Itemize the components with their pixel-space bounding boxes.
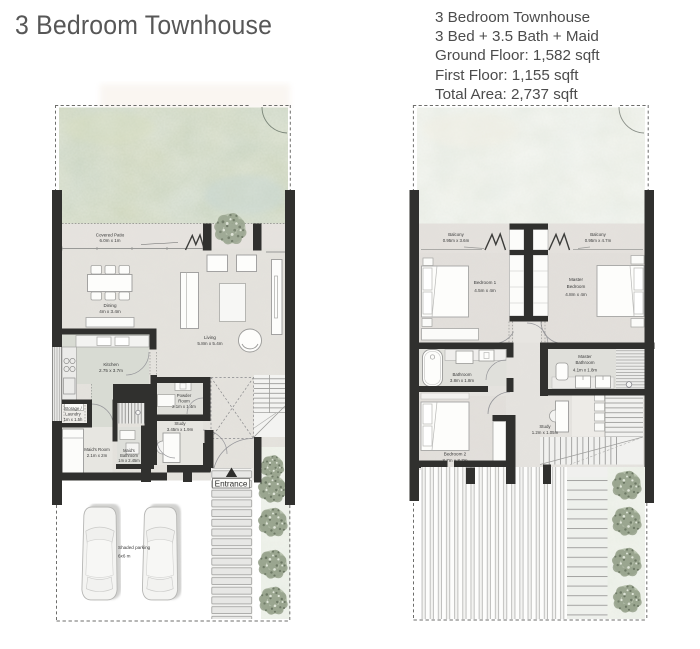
svg-text:0.95m x 4.7m: 0.95m x 4.7m [585, 238, 612, 243]
svg-text:Bathroom: Bathroom [575, 360, 594, 365]
svg-text:4.8m x 4m: 4.8m x 4m [565, 292, 587, 297]
svg-text:4.5m x 4m: 4.5m x 4m [474, 288, 496, 293]
svg-text:Bathroom: Bathroom [452, 372, 471, 377]
svg-text:5.8m x 5.4m: 5.8m x 5.4m [197, 341, 222, 346]
svg-text:3.8m x 1.8m: 3.8m x 1.8m [450, 378, 474, 383]
svg-text:4.1m x 1.8m: 4.1m x 1.8m [573, 368, 597, 373]
svg-text:Storage /: Storage / [64, 406, 82, 411]
svg-text:Room: Room [178, 399, 190, 404]
svg-text:Dining: Dining [103, 303, 116, 308]
svg-text:0.95m x 3.6m: 0.95m x 3.6m [443, 238, 470, 243]
svg-text:4m x 3.4m: 4m x 3.4m [99, 309, 121, 314]
svg-text:Study: Study [539, 424, 551, 429]
svg-text:Balcony: Balcony [448, 232, 464, 237]
svg-text:Bedroom 1: Bedroom 1 [474, 280, 497, 285]
svg-text:Bedroom 2: Bedroom 2 [444, 452, 467, 457]
svg-text:2.1m x 2m: 2.1m x 2m [87, 453, 108, 458]
svg-text:Master: Master [578, 354, 592, 359]
svg-text:6.0m x 1m: 6.0m x 1m [99, 238, 120, 243]
svg-text:Powder: Powder [177, 393, 192, 398]
svg-text:Balcony: Balcony [590, 232, 606, 237]
svg-text:Entrance: Entrance [215, 479, 248, 488]
svg-text:1m x 1.5h: 1m x 1.5h [64, 417, 83, 422]
svg-text:Living: Living [204, 335, 216, 340]
svg-text:Kitchen: Kitchen [103, 362, 119, 367]
svg-text:Study: Study [174, 421, 186, 426]
svg-text:Master: Master [569, 277, 584, 282]
svg-text:6x6 m: 6x6 m [118, 554, 131, 559]
svg-text:Covered Patio: Covered Patio [96, 233, 125, 238]
svg-text:2.75 x 3.7m: 2.75 x 3.7m [99, 368, 123, 373]
svg-text:Laundry: Laundry [65, 412, 81, 417]
svg-text:1.2m x 1.05m: 1.2m x 1.05m [532, 430, 559, 435]
svg-text:2.1m x 1.4m: 2.1m x 1.4m [172, 404, 196, 409]
svg-text:Shaded parking: Shaded parking [118, 545, 151, 550]
svg-text:1m x 2.45m: 1m x 2.45m [118, 458, 140, 463]
svg-text:Bedroom: Bedroom [567, 284, 586, 289]
svg-text:3.45m x 1.9m: 3.45m x 1.9m [167, 427, 194, 432]
svg-text:Maid's Room: Maid's Room [84, 447, 110, 452]
